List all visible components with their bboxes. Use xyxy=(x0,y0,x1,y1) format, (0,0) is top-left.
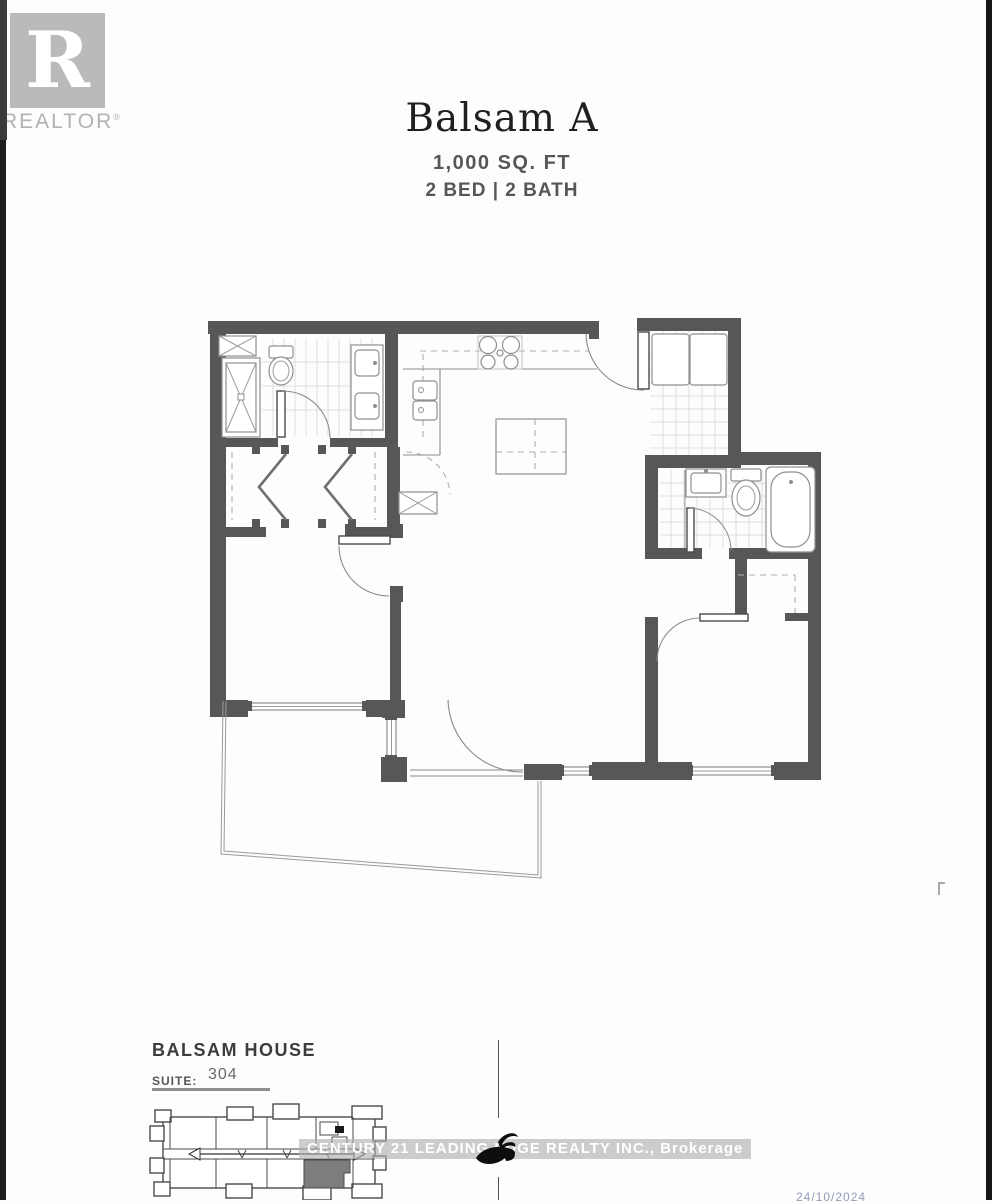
realtor-logo: R REALTOR® xyxy=(10,13,122,134)
double-vanity xyxy=(351,345,383,430)
realtor-wordmark: REALTOR® xyxy=(2,110,122,134)
page-left-edge xyxy=(0,0,6,1200)
unit-config: 2 BED | 2 BATH xyxy=(6,180,992,202)
unit-area: 1,000 SQ. FT xyxy=(6,152,992,175)
scan-artifact xyxy=(938,882,945,895)
page-right-edge xyxy=(986,0,992,1200)
building-name: BALSAM HOUSE xyxy=(152,1040,316,1061)
footer-divider-line-lower xyxy=(498,1177,499,1200)
dining-table xyxy=(496,419,566,474)
balcony xyxy=(221,701,541,878)
century21-swirl-icon xyxy=(468,1128,528,1170)
vanity-2 xyxy=(686,469,726,497)
kitchen xyxy=(403,336,597,455)
shower xyxy=(222,358,260,437)
toilet-2 xyxy=(731,469,761,516)
suite-label: SUITE: xyxy=(152,1074,197,1088)
windows xyxy=(248,701,775,776)
footer-divider-line xyxy=(498,1040,499,1118)
realtor-r-letter: R xyxy=(25,13,90,108)
highlighted-suite xyxy=(304,1160,350,1188)
bathtub xyxy=(766,467,815,552)
suite-underline xyxy=(152,1088,270,1091)
vent-closet xyxy=(219,336,256,356)
date-stamp: 24/10/2024 xyxy=(796,1190,866,1204)
page-title: Balsam A xyxy=(6,96,992,141)
walls xyxy=(208,318,821,782)
floorplan-page: { "page": {"background": "#fdfdfd", "edg… xyxy=(0,0,992,1200)
washer-dryer xyxy=(652,334,727,385)
registered-mark: ® xyxy=(113,112,122,122)
realtor-logo-icon: R xyxy=(10,13,105,108)
pantry-closet xyxy=(391,490,437,516)
page-left-edge-top xyxy=(0,0,7,140)
toilet-1 xyxy=(269,346,293,385)
suite-number: 304 xyxy=(208,1066,238,1084)
